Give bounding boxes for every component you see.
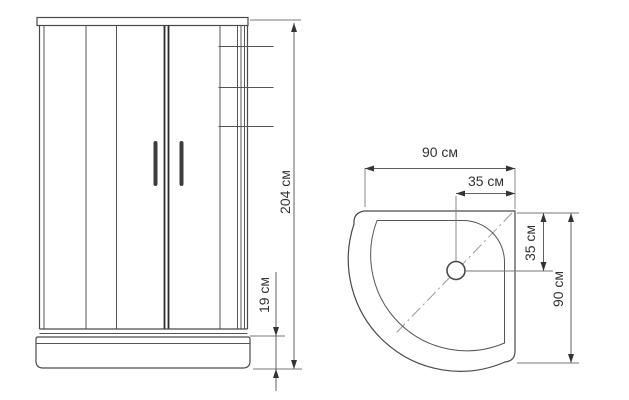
arrow-down-icon: [541, 262, 547, 271]
cabin-top-bar: [37, 18, 248, 26]
depth-label: 90 см: [550, 271, 566, 307]
arrow-up-icon: [273, 369, 279, 378]
tray-inner-outline: [371, 221, 505, 351]
arrow-up-icon: [541, 213, 547, 222]
arrow-right-icon: [506, 166, 515, 172]
drain-icon: [447, 262, 465, 280]
arrow-left-icon: [456, 191, 465, 197]
door-handle-icon: [180, 141, 184, 186]
arrow-down-icon: [291, 360, 297, 369]
corner-shelves: [219, 47, 274, 127]
base-height-label: 19 см: [256, 277, 272, 313]
shower-cabin-drawing: 204 см 19 см 90: [0, 0, 629, 400]
arrow-up-icon: [291, 23, 297, 32]
arrow-right-icon: [506, 191, 515, 197]
front-view-dimensions: 204 см 19 см: [250, 20, 302, 391]
glass-panel-lines: [40, 26, 248, 330]
door-handle-icon: [154, 141, 158, 186]
arrow-down-icon: [568, 354, 574, 363]
width-label: 90 см: [422, 144, 458, 160]
arrow-up-icon: [568, 213, 574, 222]
arrow-left-icon: [365, 166, 374, 172]
cabin-base: [36, 337, 250, 368]
base-outline: [36, 337, 250, 368]
arrow-down-icon: [273, 327, 279, 336]
total-height-label: 204 см: [277, 170, 293, 214]
shower-cabin-front-view: [36, 18, 274, 369]
drain-offset-horizontal-label: 35 см: [468, 173, 504, 189]
dimension-drain-offset-horizontal: 35 см: [456, 173, 515, 197]
shower-tray-top-view: [348, 211, 515, 371]
dimension-width: 90 см: [365, 144, 515, 172]
dimension-total-height: 204 см: [277, 23, 297, 369]
dimension-drain-offset-vertical: 35 см: [522, 213, 547, 271]
top-view-dimensions: 90 см 35 см 35 см 90 см: [365, 144, 579, 363]
technical-drawing-sheet: 204 см 19 см 90: [0, 0, 629, 400]
dimension-depth: 90 см: [550, 213, 574, 363]
dimension-base-height: 19 см: [256, 272, 279, 391]
drain-offset-vertical-label: 35 см: [522, 225, 538, 261]
